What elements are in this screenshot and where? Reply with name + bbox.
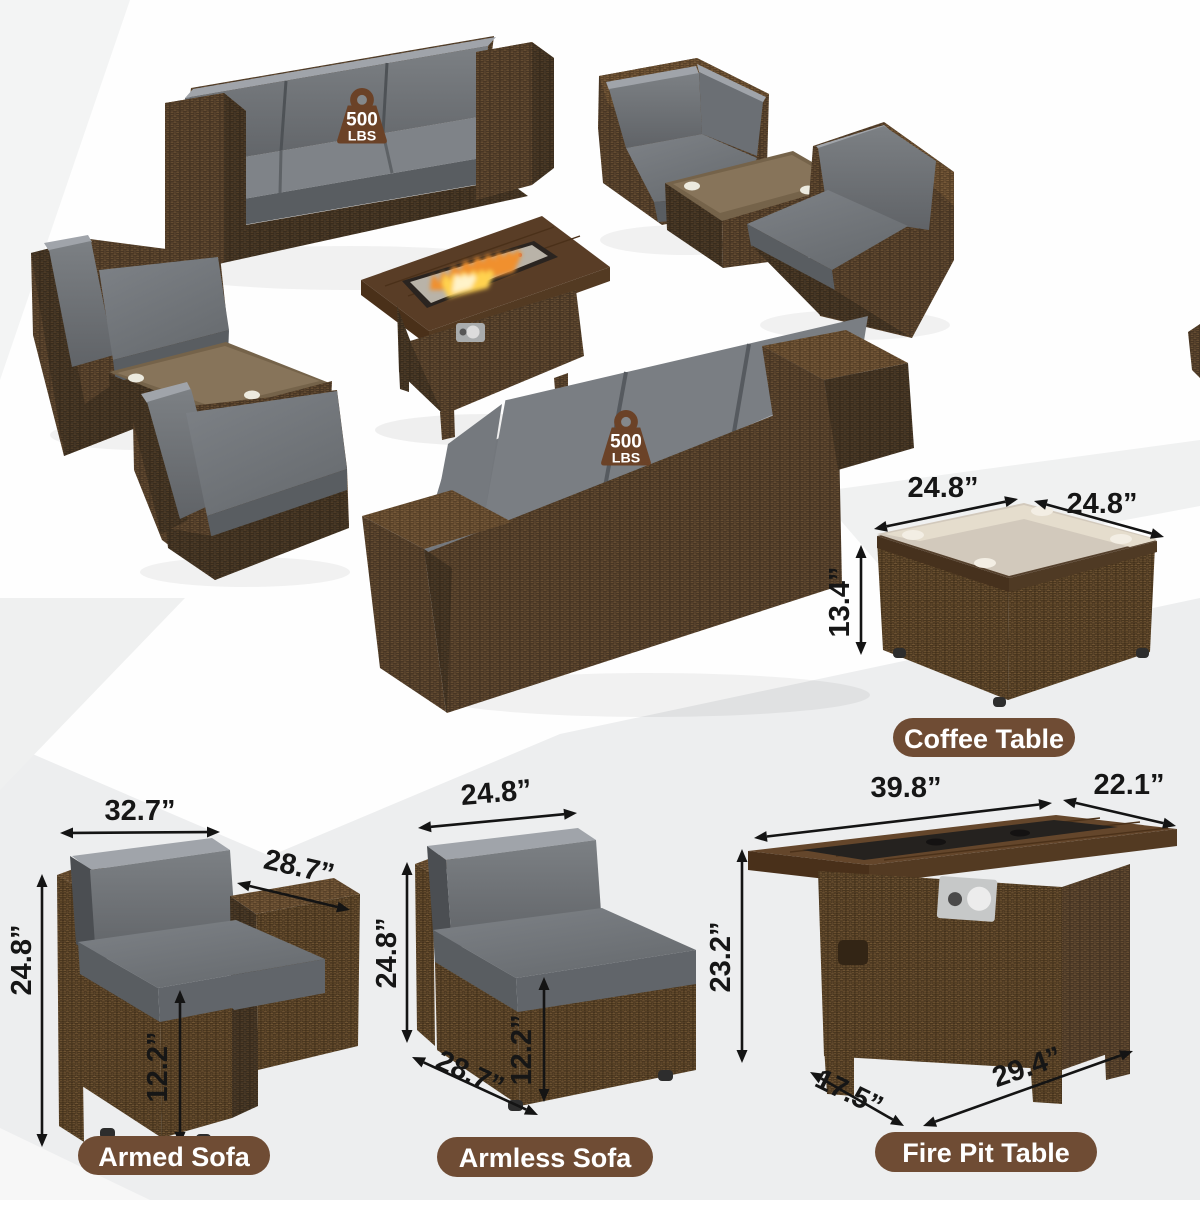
svg-text:24.8”: 24.8” [371, 918, 403, 989]
svg-text:LBS: LBS [348, 129, 377, 145]
svg-text:24.8”: 24.8” [908, 472, 979, 504]
svg-text:500: 500 [346, 110, 378, 131]
svg-text:500: 500 [610, 432, 642, 453]
svg-text:32.7”: 32.7” [105, 795, 176, 827]
svg-text:24.8”: 24.8” [459, 774, 532, 812]
svg-text:12.2”: 12.2” [142, 1032, 174, 1103]
svg-text:39.8”: 39.8” [871, 772, 942, 804]
svg-text:LBS: LBS [612, 451, 641, 467]
svg-text:12.2”: 12.2” [506, 1015, 538, 1086]
svg-text:Fire Pit Table: Fire Pit Table [902, 1138, 1070, 1168]
svg-text:Armless Sofa: Armless Sofa [459, 1143, 633, 1173]
svg-text:22.1”: 22.1” [1094, 769, 1165, 801]
svg-text:13.4”: 13.4” [824, 567, 856, 638]
svg-text:24.8”: 24.8” [6, 925, 38, 996]
svg-text:Coffee Table: Coffee Table [904, 724, 1064, 754]
svg-text:Armed Sofa: Armed Sofa [98, 1142, 251, 1172]
svg-text:24.8”: 24.8” [1067, 488, 1138, 520]
svg-text:23.2”: 23.2” [705, 922, 737, 993]
